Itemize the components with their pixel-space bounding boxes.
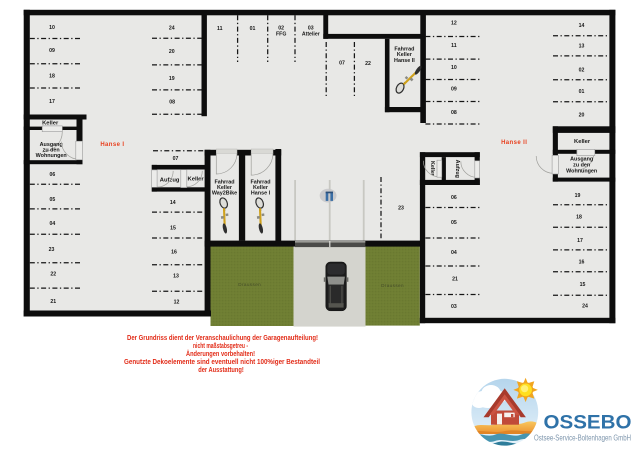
svg-text:13: 13 [579,44,585,50]
svg-text:18: 18 [49,74,55,80]
svg-text:Ostsee-Service-Boltenhagen Gmb: Ostsee-Service-Boltenhagen GmbH [534,432,631,442]
svg-text:OSSEBO: OSSEBO [544,411,632,433]
svg-text:20: 20 [169,49,175,55]
svg-text:14: 14 [579,23,585,29]
svg-text:20: 20 [579,113,585,119]
svg-text:Der Grundriss dient der Verans: Der Grundriss dient der Veranschaulichun… [127,335,318,342]
svg-text:11: 11 [217,26,223,32]
svg-text:21: 21 [452,276,458,282]
svg-text:Genutzte Dekoelemente sind eve: Genutzte Dekoelemente sind eventuell nic… [124,359,320,366]
svg-text:04: 04 [451,250,457,256]
svg-text:04: 04 [50,221,56,227]
svg-text:02: 02 [579,68,585,74]
svg-text:22: 22 [50,272,56,278]
svg-text:Wohnungen: Wohnungen [36,153,67,159]
svg-text:12: 12 [451,20,457,26]
svg-text:19: 19 [575,193,581,199]
svg-text:Hanse II: Hanse II [394,58,415,64]
svg-text:19: 19 [169,76,175,82]
svg-text:21: 21 [50,299,56,305]
svg-text:10: 10 [49,25,55,31]
svg-text:der Ausstattung!: der Ausstattung! [198,367,244,374]
svg-text:09: 09 [451,87,457,93]
svg-text:Attelier: Attelier [302,31,320,37]
svg-text:06: 06 [451,195,457,201]
svg-text:06: 06 [50,172,56,178]
svg-text:07: 07 [173,156,179,162]
svg-text:10: 10 [451,65,457,71]
svg-text:17: 17 [577,238,583,244]
svg-text:22: 22 [365,61,371,67]
svg-text:Way2Bike: Way2Bike [212,190,237,196]
svg-text:FFG: FFG [276,31,286,37]
svg-text:05: 05 [451,220,457,226]
svg-text:Änderungen vorbehalten!: Änderungen vorbehalten! [186,350,255,358]
svg-text:13: 13 [173,274,179,280]
svg-text:Aufzug: Aufzug [454,160,460,178]
svg-text:nicht maßstabsgetreu -: nicht maßstabsgetreu - [193,343,248,350]
svg-text:Hanse I: Hanse I [251,190,271,196]
svg-text:18: 18 [576,214,582,220]
svg-text:Keller: Keller [188,176,205,182]
svg-text:01: 01 [250,26,256,32]
svg-text:03: 03 [451,304,457,310]
svg-text:07: 07 [339,61,345,67]
svg-text:15: 15 [580,282,586,288]
svg-text:01: 01 [579,89,585,95]
svg-text:Keller: Keller [574,139,591,145]
svg-text:14: 14 [170,200,176,206]
svg-text:Draussen: Draussen [381,283,404,288]
svg-text:05: 05 [50,197,56,203]
svg-text:08: 08 [451,110,457,116]
svg-text:16: 16 [579,260,585,266]
svg-text:08: 08 [169,99,175,105]
svg-text:16: 16 [171,250,177,256]
svg-text:Hanse II: Hanse II [501,140,527,146]
svg-text:Keller: Keller [429,161,435,177]
svg-text:24: 24 [169,26,175,32]
svg-text:17: 17 [49,99,55,105]
svg-text:23: 23 [49,247,55,253]
svg-text:09: 09 [49,48,55,54]
svg-text:Wohnungen: Wohnungen [566,169,597,175]
svg-text:23: 23 [398,205,404,211]
svg-text:15: 15 [170,225,176,231]
svg-text:11: 11 [451,43,457,49]
svg-text:12: 12 [174,299,180,305]
svg-text:Draussen: Draussen [238,282,261,287]
svg-text:Keller: Keller [42,120,59,126]
svg-text:24: 24 [582,304,588,310]
svg-text:Hanse I: Hanse I [100,142,124,148]
